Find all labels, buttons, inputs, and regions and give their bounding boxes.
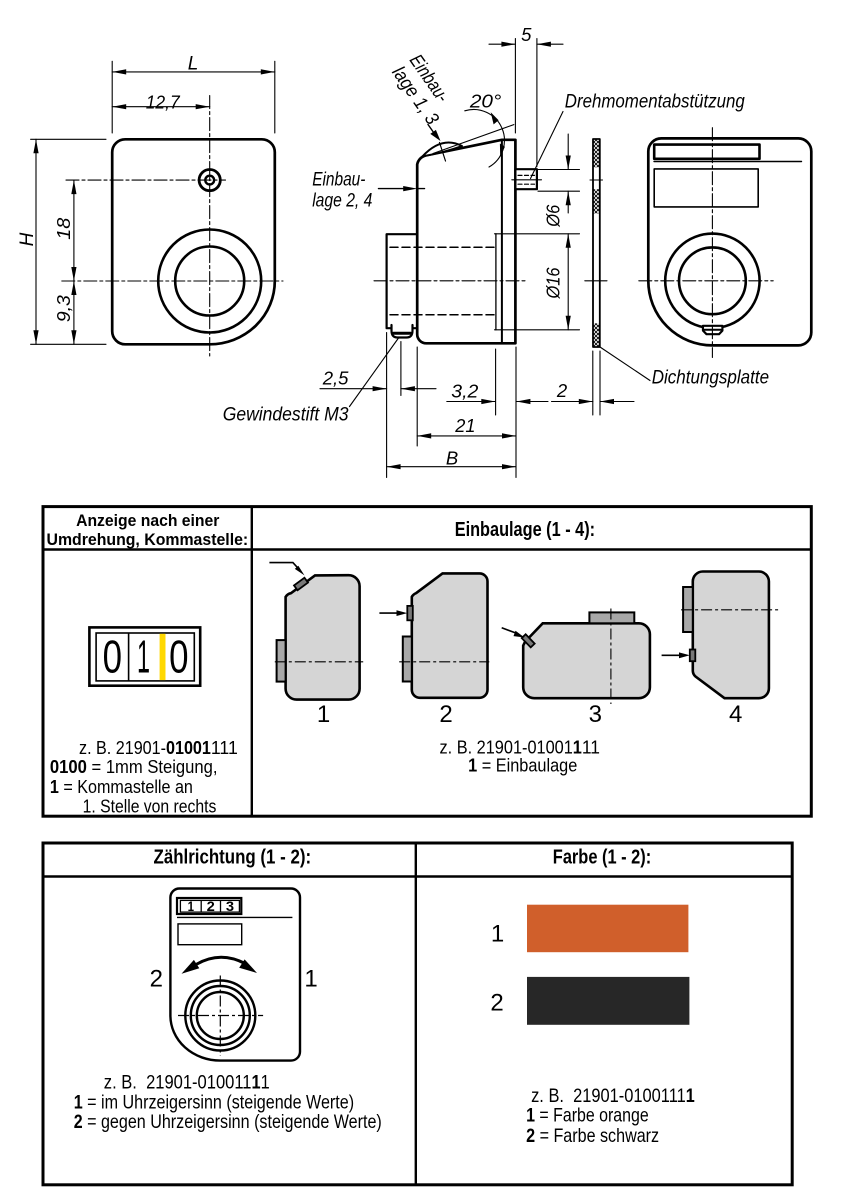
svg-text:Zählrichtung (1 - 2):: Zählrichtung (1 - 2):: [154, 846, 312, 868]
svg-text:1: 1: [304, 966, 317, 993]
svg-text:9,3: 9,3: [53, 294, 74, 322]
svg-text:Dichtungsplatte: Dichtungsplatte: [652, 367, 769, 388]
svg-text:Farbe (1 - 2):: Farbe (1 - 2):: [553, 846, 651, 868]
svg-text:= Kommastelle an: = Kommastelle an: [59, 776, 193, 797]
svg-text:1: 1: [50, 776, 59, 797]
svg-text:Ø16: Ø16: [543, 267, 564, 300]
svg-text:2: 2: [526, 1125, 535, 1147]
svg-text:3,2: 3,2: [451, 380, 479, 401]
svg-text:Anzeige nach einer: Anzeige nach einer: [76, 512, 220, 530]
svg-text:1: 1: [317, 701, 330, 728]
svg-text:2: 2: [556, 380, 568, 401]
svg-text:0100: 0100: [50, 756, 87, 777]
svg-text:Gewindestift M3: Gewindestift M3: [223, 405, 349, 426]
svg-text:111: 111: [211, 737, 238, 758]
svg-text:= gegen Uhrzeigersinn (steigen: = gegen Uhrzeigersinn (steigende Werte): [83, 1111, 382, 1133]
svg-text:L: L: [188, 54, 199, 75]
svg-text:H: H: [17, 232, 38, 246]
svg-text:01001: 01001: [166, 737, 211, 758]
svg-text:= 1mm Steigung,: = 1mm Steigung,: [87, 756, 218, 777]
svg-text:2: 2: [207, 898, 215, 914]
svg-text:1: 1: [252, 1071, 261, 1093]
svg-text:3: 3: [589, 701, 602, 728]
svg-text:1: 1: [261, 1071, 270, 1093]
svg-text:18: 18: [53, 217, 74, 240]
svg-text:1: 1: [137, 631, 150, 683]
svg-text:1: 1: [188, 898, 195, 914]
svg-text:2: 2: [150, 966, 163, 993]
svg-text:0: 0: [103, 631, 122, 683]
svg-text:2: 2: [490, 990, 503, 1017]
svg-text:= Farbe orange: = Farbe orange: [535, 1105, 649, 1127]
svg-text:5: 5: [521, 24, 532, 45]
svg-text:0: 0: [169, 631, 188, 683]
svg-text:= Einbaulage: = Einbaulage: [477, 755, 577, 776]
svg-text:3: 3: [226, 898, 234, 914]
svg-text:z. B. 21901-: z. B. 21901-: [79, 737, 166, 758]
svg-text:Einbau-: Einbau-: [312, 170, 365, 191]
svg-text:Einbaulage (1 - 4):: Einbaulage (1 - 4):: [455, 518, 595, 541]
svg-text:z. B. 21901-010011: z. B. 21901-010011: [104, 1071, 252, 1093]
svg-text:1: 1: [468, 755, 477, 776]
svg-text:Drehmomentabstützung: Drehmomentabstützung: [565, 92, 745, 113]
svg-text:B: B: [446, 448, 458, 469]
svg-text:1: 1: [491, 921, 504, 948]
svg-text:2: 2: [74, 1111, 83, 1133]
svg-text:lage 2, 4: lage 2, 4: [312, 191, 372, 212]
svg-text:1: 1: [686, 1085, 695, 1107]
svg-text:2: 2: [439, 701, 452, 728]
svg-text:1: 1: [526, 1105, 535, 1127]
svg-text:4: 4: [729, 701, 742, 728]
svg-text:Umdrehung, Kommastelle:: Umdrehung, Kommastelle:: [47, 531, 249, 549]
svg-text:= Farbe schwarz: = Farbe schwarz: [535, 1125, 659, 1147]
svg-text:12,7: 12,7: [146, 92, 181, 113]
svg-text:11: 11: [582, 736, 600, 757]
svg-text:21: 21: [454, 415, 475, 436]
svg-text:1. Stelle von rechts: 1. Stelle von rechts: [83, 795, 217, 816]
svg-text:20°: 20°: [469, 90, 502, 111]
svg-text:2,5: 2,5: [322, 367, 349, 388]
svg-text:Ø6: Ø6: [543, 204, 564, 228]
